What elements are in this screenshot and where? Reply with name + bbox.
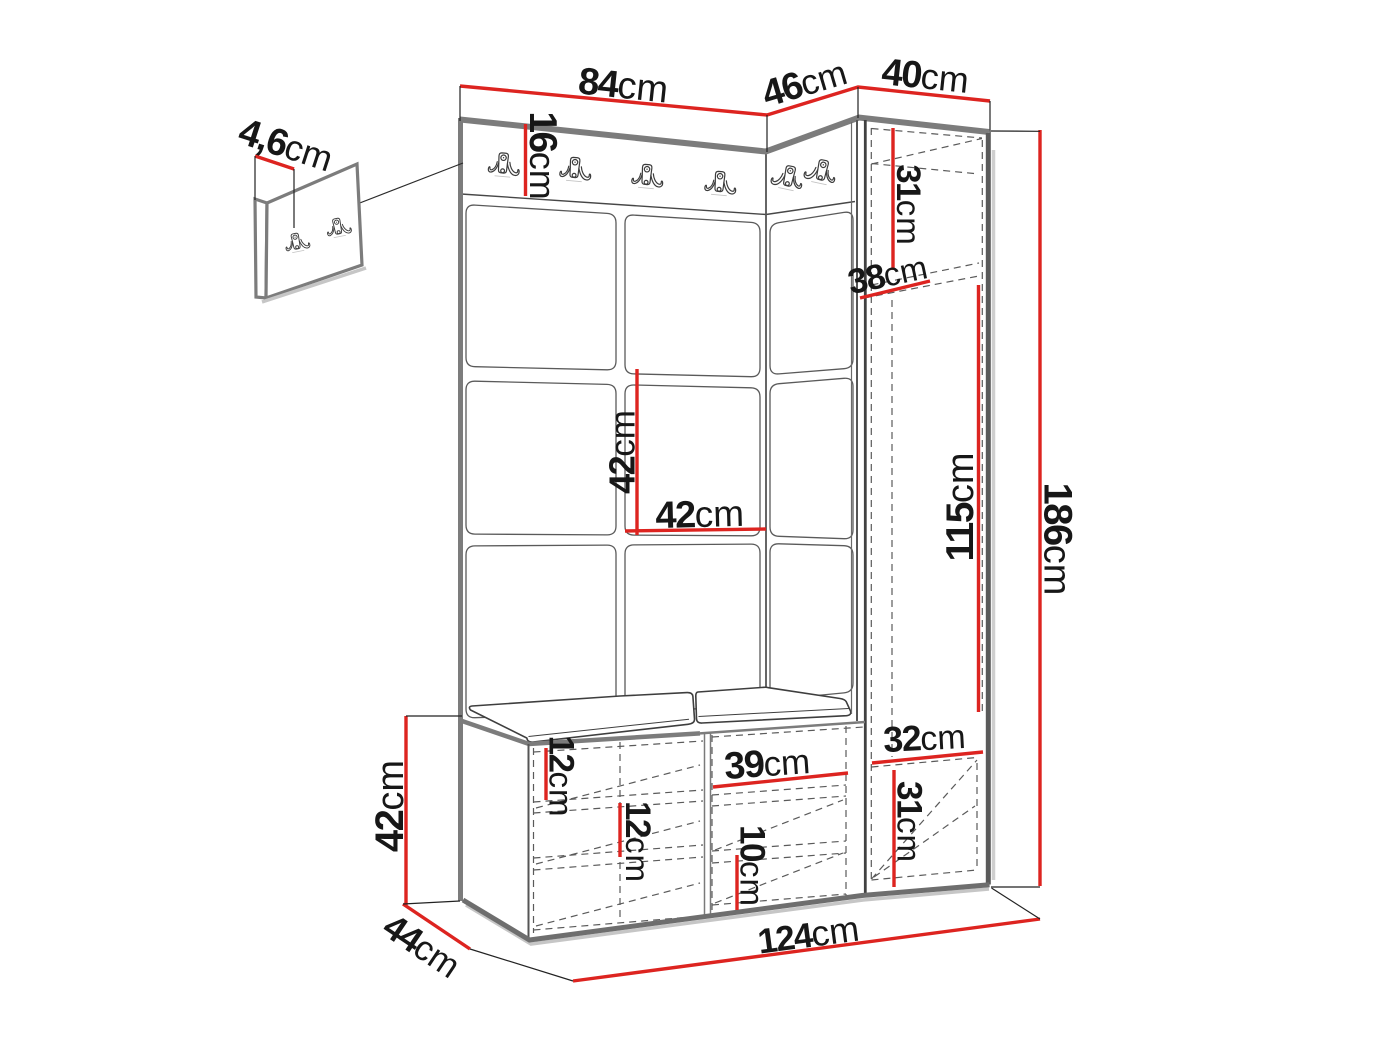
svg-text:39cm: 39cm bbox=[723, 740, 812, 788]
svg-text:31cm: 31cm bbox=[889, 164, 927, 245]
svg-text:12cm: 12cm bbox=[618, 801, 657, 883]
svg-text:31cm: 31cm bbox=[890, 781, 929, 863]
svg-text:42cm: 42cm bbox=[368, 760, 412, 852]
svg-text:115cm: 115cm bbox=[939, 452, 982, 561]
svg-text:16cm: 16cm bbox=[521, 111, 564, 199]
svg-text:10cm: 10cm bbox=[733, 825, 772, 907]
svg-text:42cm: 42cm bbox=[602, 410, 643, 494]
svg-text:42cm: 42cm bbox=[655, 493, 745, 537]
svg-text:186cm: 186cm bbox=[1036, 483, 1080, 596]
svg-text:12cm: 12cm bbox=[542, 736, 581, 818]
svg-text:32cm: 32cm bbox=[882, 715, 966, 760]
